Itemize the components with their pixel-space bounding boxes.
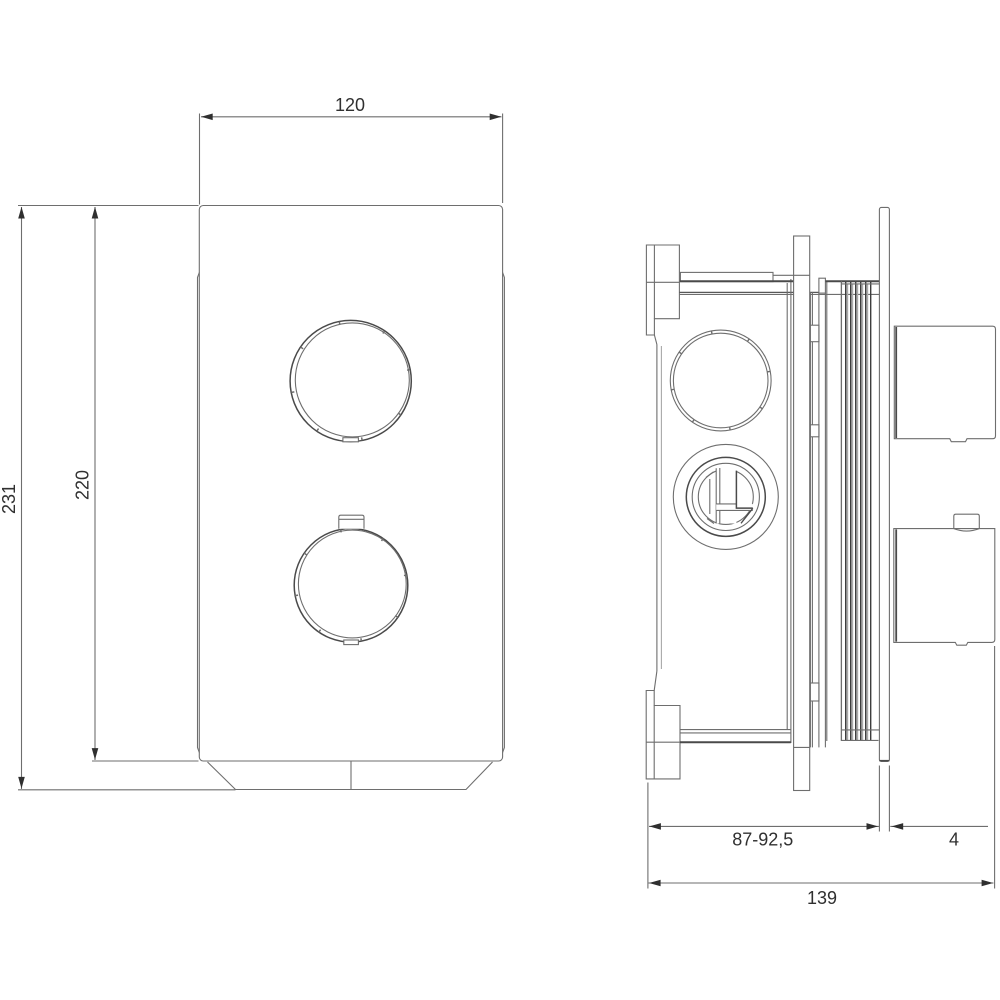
svg-text:87-92,5: 87-92,5 [732, 830, 793, 850]
svg-text:139: 139 [807, 888, 837, 908]
svg-text:220: 220 [73, 470, 93, 500]
svg-text:231: 231 [0, 484, 19, 514]
svg-text:120: 120 [335, 95, 365, 115]
svg-text:4: 4 [949, 830, 959, 850]
